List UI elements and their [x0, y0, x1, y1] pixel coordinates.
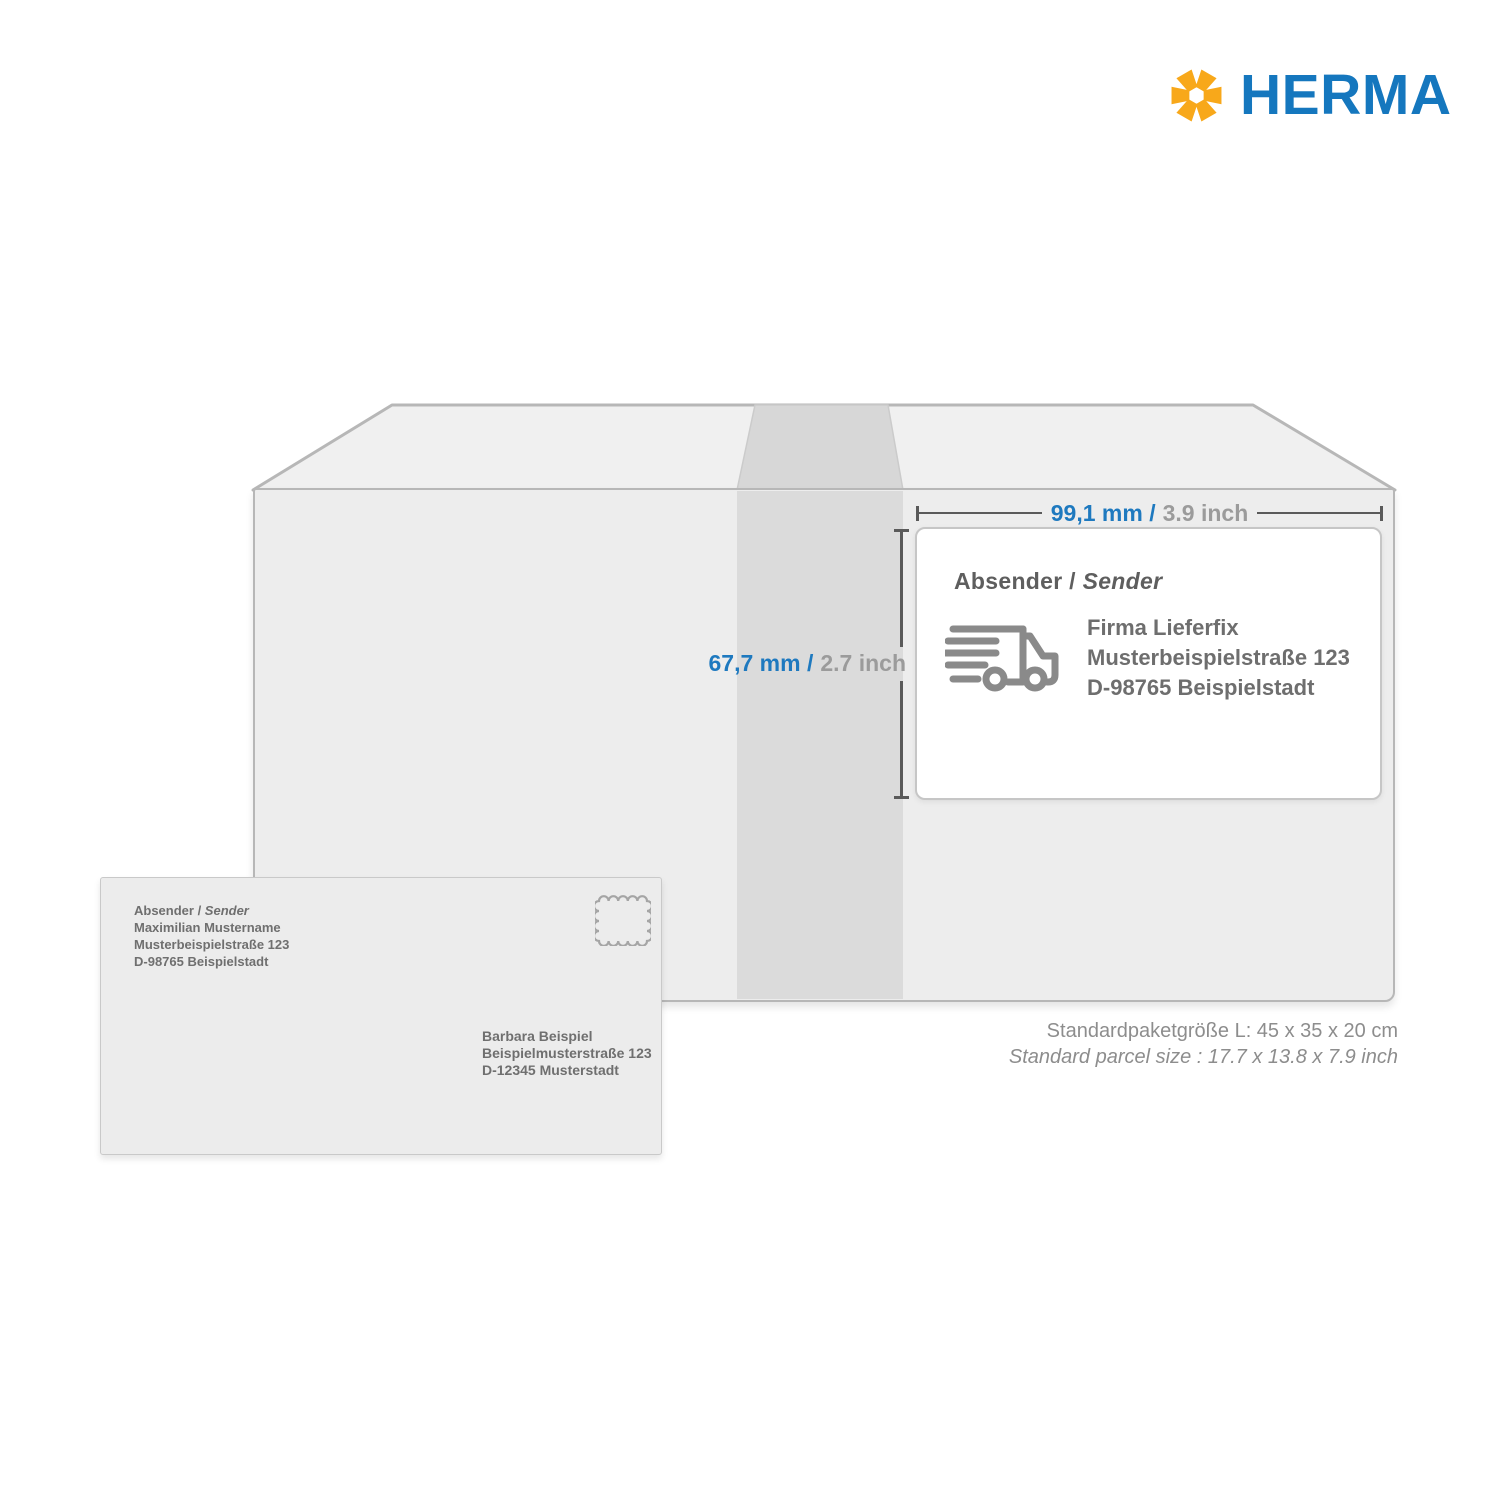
shipping-label-address: Firma Lieferfix Musterbeispielstraße 123…	[1087, 613, 1350, 703]
parcel-tape-band-top	[737, 405, 903, 490]
envelope-recipient-line: Beispielmusterstraße 123	[482, 1045, 652, 1062]
parcel-size-note-de: Standardpaketgröße L: 45 x 35 x 20 cm	[1009, 1018, 1398, 1044]
envelope-sender-line: Maximilian Mustername	[134, 919, 289, 936]
shipping-label: Absender / Sender Firma Lieferfix Muster…	[915, 527, 1382, 800]
height-dimension-text: 67,7 mm /2.7 inch	[640, 648, 906, 678]
shipping-label-heading-italic: Sender	[1083, 568, 1163, 594]
height-imperial-value: 2.7 inch	[820, 650, 906, 676]
herma-asterisk-icon	[1170, 69, 1223, 122]
envelope-sender-heading-prefix: Absender /	[134, 903, 205, 918]
envelope-recipient-line: Barbara Beispiel	[482, 1028, 652, 1045]
envelope-sender-line: Musterbeispielstraße 123	[134, 936, 289, 953]
envelope: Absender / Sender Maximilian Mustername …	[100, 877, 662, 1155]
dimension-line	[919, 512, 1042, 515]
shipping-label-address-line: Firma Lieferfix	[1087, 613, 1350, 643]
stamp-icon	[595, 892, 651, 946]
shipping-label-address-line: Musterbeispielstraße 123	[1087, 643, 1350, 673]
envelope-recipient-line: D-12345 Musterstadt	[482, 1062, 652, 1079]
delivery-truck-icon	[945, 619, 1059, 697]
parcel-top-face	[240, 393, 1410, 497]
herma-label-illustration: HERMA Absender / Sender Maximilian Muste…	[0, 0, 1500, 1500]
parcel-size-note: Standardpaketgröße L: 45 x 35 x 20 cm St…	[1009, 1018, 1398, 1070]
envelope-recipient-block: Barbara Beispiel Beispielmusterstraße 12…	[482, 1028, 652, 1079]
width-metric-value: 99,1 mm /	[1051, 500, 1156, 526]
envelope-sender-block: Absender / Sender Maximilian Mustername …	[134, 902, 289, 970]
dimension-end-cap	[894, 796, 909, 799]
height-metric-value: 67,7 mm /	[709, 650, 814, 676]
parcel-tape-band-front	[737, 491, 903, 999]
width-imperial-value: 3.9 inch	[1163, 500, 1249, 526]
dimension-end-cap	[1380, 506, 1383, 521]
width-dimension-text: 99,1 mm /3.9 inch	[1042, 498, 1258, 528]
dimension-line	[900, 681, 903, 796]
shipping-label-heading-prefix: Absender /	[954, 568, 1083, 594]
shipping-label-heading: Absender / Sender	[954, 567, 1162, 595]
herma-logo: HERMA	[1170, 57, 1452, 133]
envelope-sender-heading: Absender / Sender	[134, 902, 289, 919]
herma-wordmark: HERMA	[1240, 65, 1452, 125]
dimension-line	[1257, 512, 1380, 515]
envelope-sender-line: D-98765 Beispielstadt	[134, 953, 289, 970]
parcel-size-note-en: Standard parcel size : 17.7 x 13.8 x 7.9…	[1009, 1044, 1398, 1070]
dimension-line	[900, 532, 903, 647]
width-dimension-marker: 99,1 mm /3.9 inch	[916, 498, 1383, 528]
shipping-label-address-line: D-98765 Beispielstadt	[1087, 673, 1350, 703]
envelope-sender-heading-italic: Sender	[205, 903, 249, 918]
